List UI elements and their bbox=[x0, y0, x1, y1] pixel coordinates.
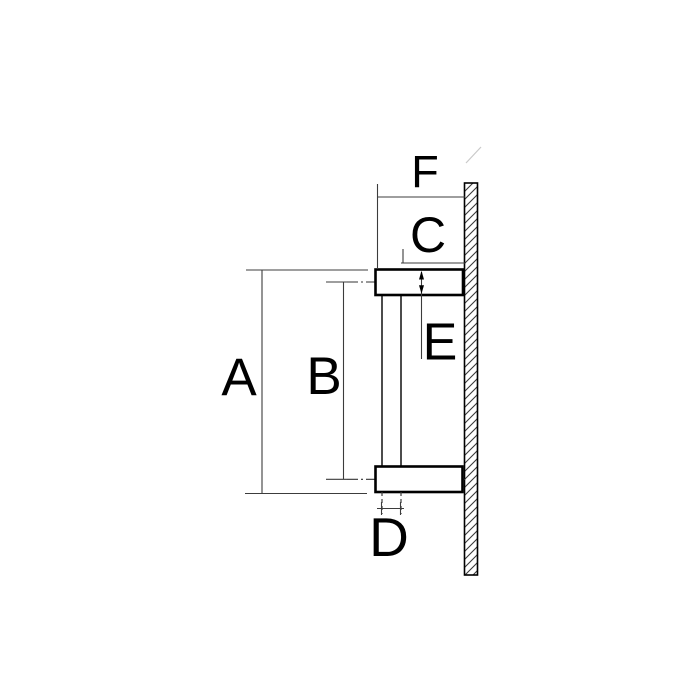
stray-hatch-mark bbox=[466, 147, 481, 163]
handle-dimension-diagram: A B F C E D bbox=[0, 0, 700, 700]
dim-label-c: C bbox=[410, 207, 446, 263]
wall-section bbox=[465, 183, 478, 575]
dim-label-f: F bbox=[411, 146, 439, 197]
bottom-standoff-mount bbox=[376, 467, 463, 493]
top-standoff-mount bbox=[376, 270, 464, 296]
dim-label-b: B bbox=[306, 347, 341, 406]
dim-label-a: A bbox=[221, 348, 257, 407]
dim-label-e: E bbox=[423, 314, 458, 372]
dim-label-d: D bbox=[369, 506, 409, 568]
technical-drawing-canvas: A B F C E D bbox=[0, 0, 700, 700]
